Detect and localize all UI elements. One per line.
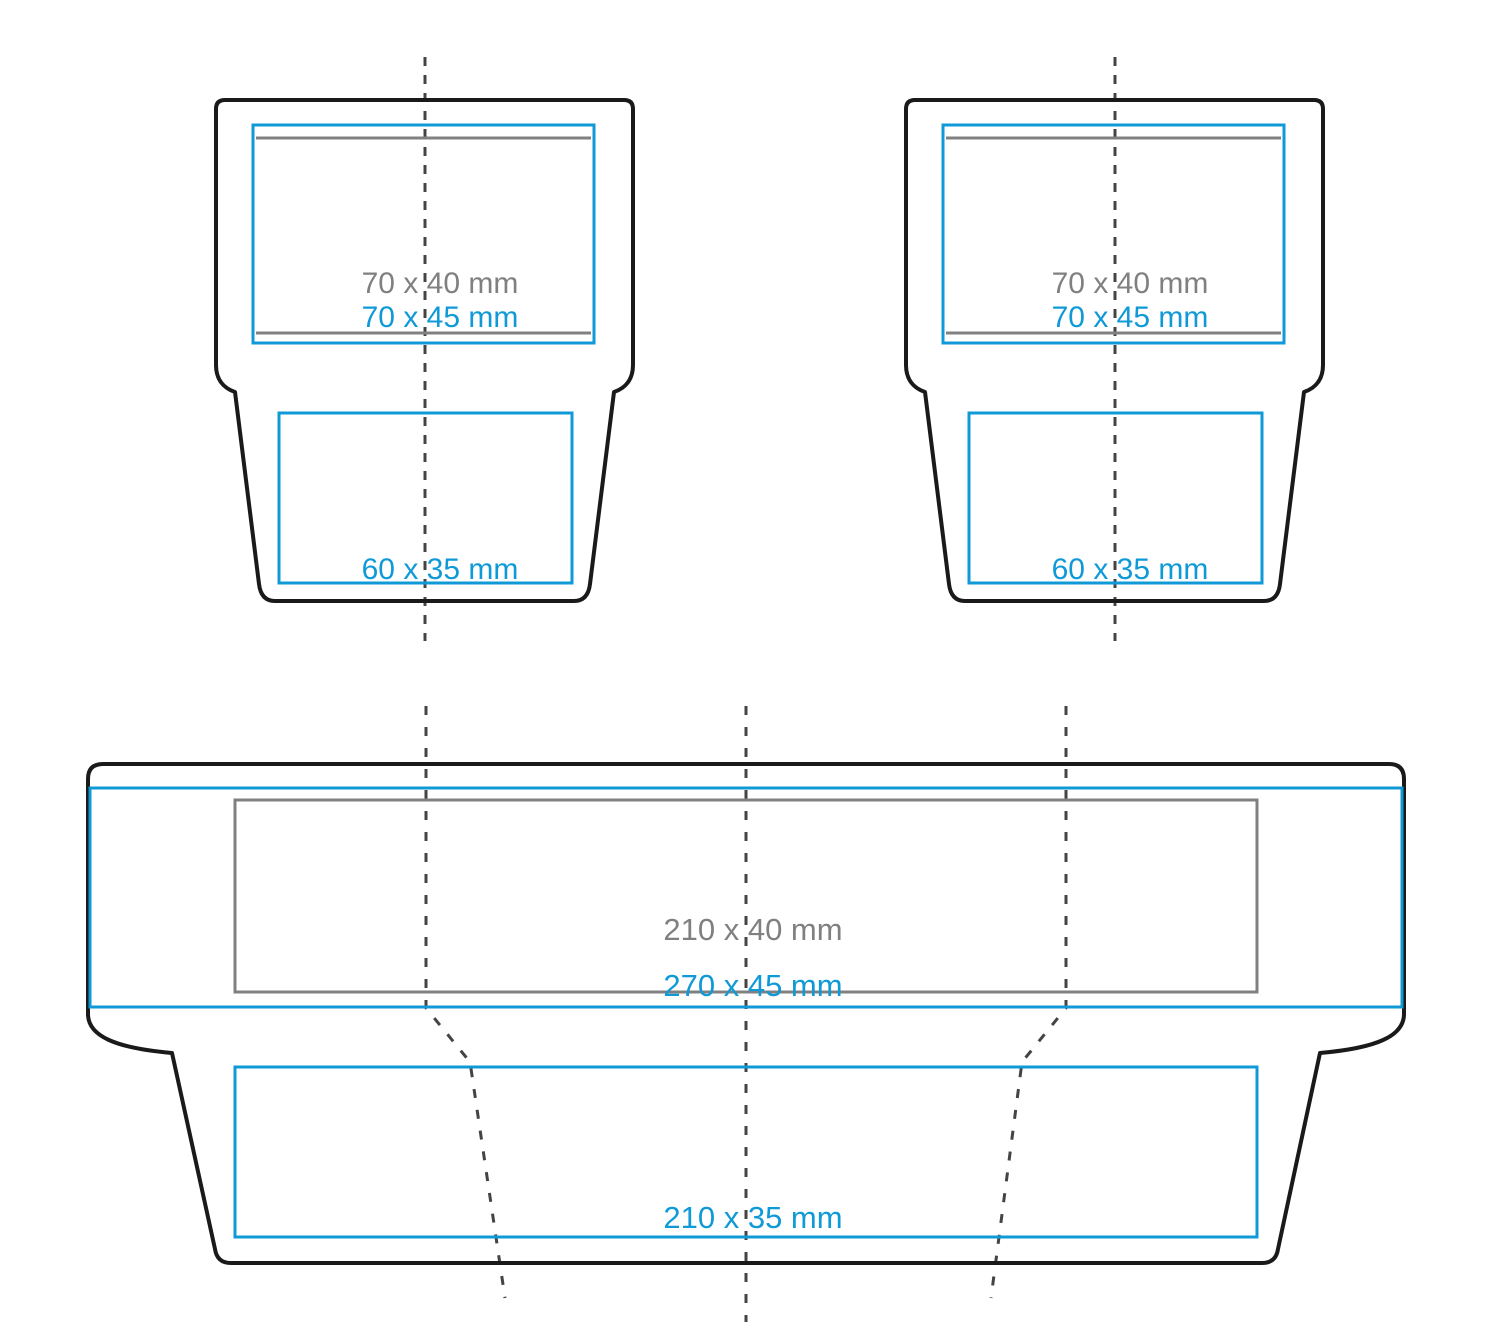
top-right-dieline: 70 x 40 mm 70 x 45 mm 60 x 35 mm bbox=[906, 57, 1323, 641]
top-right-blue-zone-label: 70 x 45 mm bbox=[1052, 301, 1209, 334]
bottom-right-fold-line bbox=[991, 706, 1066, 1298]
dieline-diagram: 70 x 40 mm 70 x 45 mm 60 x 35 mm 70 x 40… bbox=[0, 0, 1500, 1344]
top-left-dieline: 70 x 40 mm 70 x 45 mm 60 x 35 mm bbox=[216, 57, 633, 641]
top-right-front-zone-label: 60 x 35 mm bbox=[1052, 553, 1209, 586]
bottom-blue-zone-label: 270 x 45 mm bbox=[663, 968, 842, 1003]
top-left-blue-zone-label: 70 x 45 mm bbox=[362, 301, 519, 334]
bottom-front-zone-label: 210 x 35 mm bbox=[663, 1200, 842, 1235]
bottom-dieline: 210 x 40 mm 270 x 45 mm 210 x 35 mm bbox=[88, 706, 1404, 1322]
dieline-canvas: 70 x 40 mm 70 x 45 mm 60 x 35 mm 70 x 40… bbox=[0, 0, 1500, 1344]
top-left-front-zone-label: 60 x 35 mm bbox=[362, 553, 519, 586]
top-right-gray-zone-label: 70 x 40 mm bbox=[1052, 267, 1209, 300]
top-left-gray-zone-label: 70 x 40 mm bbox=[362, 267, 519, 300]
bottom-gray-zone-label: 210 x 40 mm bbox=[663, 912, 842, 947]
bottom-left-fold-line bbox=[426, 706, 505, 1298]
